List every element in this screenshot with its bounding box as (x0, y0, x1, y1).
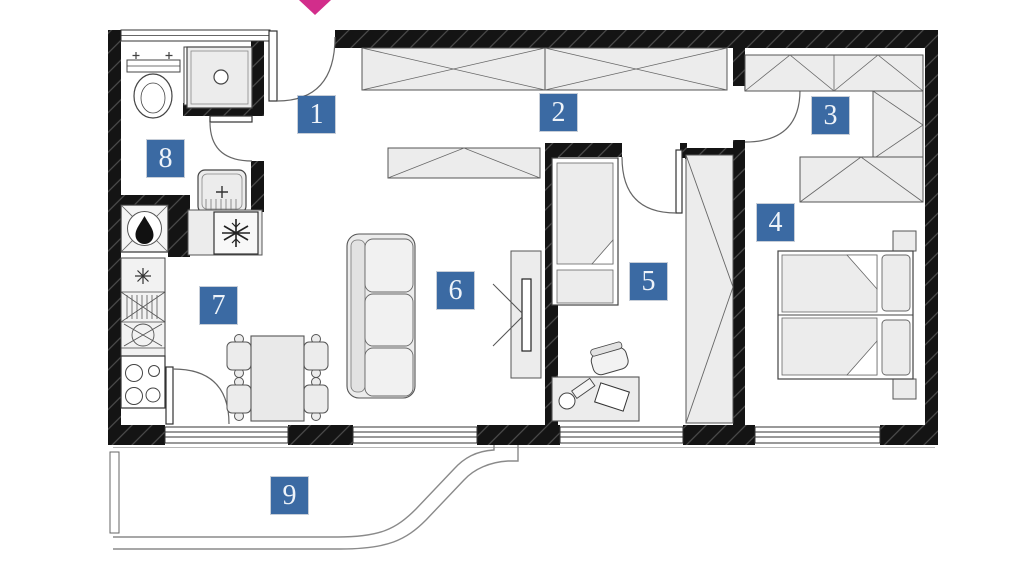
toilet-icon (127, 52, 180, 118)
wall-bedroom-left-upper (733, 48, 745, 86)
fridge-snowflake-icon (188, 210, 262, 255)
pillow (882, 255, 910, 311)
room-label-6: 6 (437, 272, 474, 309)
wall-bedroom-left (733, 140, 745, 425)
terrace-rail-post (110, 452, 119, 533)
washbasin-icon (198, 170, 246, 213)
entrance-arrow-icon (299, 0, 331, 15)
room-label-2: 2 (540, 94, 577, 131)
bathroom-fixtures (121, 47, 262, 255)
room-label-3: 3 (812, 97, 849, 134)
nightstand (893, 231, 916, 251)
room-label-8: 8 (147, 140, 184, 177)
window-living (353, 427, 477, 443)
double-bed (778, 251, 913, 379)
room-label-9: 9 (271, 477, 308, 514)
dining-table (251, 336, 304, 421)
wardrobe (873, 91, 923, 159)
balcony-door (166, 367, 229, 424)
window-kidsroom (560, 427, 683, 443)
wall-bottom-pier (880, 425, 938, 445)
window-bedroom (755, 427, 880, 443)
terrace-rail-outer (113, 445, 518, 549)
nightstand (893, 379, 916, 399)
wardrobe (800, 157, 923, 202)
wall-right (925, 30, 938, 445)
stove-burners-icon (121, 356, 165, 408)
wall-bottom-pier (683, 425, 755, 445)
wardrobe (745, 55, 923, 91)
dining-set (227, 335, 328, 422)
kidsroom-door (622, 150, 682, 213)
wall-bottom-pier (477, 425, 560, 445)
tv-unit (493, 251, 541, 378)
room-label-4: 4 (757, 204, 794, 241)
boiler-flame-icon (121, 205, 168, 252)
room-label-1: 1 (298, 96, 335, 133)
wall-bottom-pier (288, 425, 353, 445)
sliding-wardrobe (686, 155, 733, 423)
window-kitchen (165, 427, 288, 443)
shelf-unit (388, 148, 540, 178)
wall-top (335, 30, 938, 48)
wall-left (108, 30, 121, 445)
bathroom-door (210, 116, 252, 161)
bedroom-furniture (778, 231, 916, 399)
kitchen-counter (121, 258, 165, 408)
floor-plan: 1 2 3 4 5 6 7 8 9 (0, 0, 1011, 570)
sofa (347, 234, 415, 398)
shower-icon (187, 47, 252, 108)
wall-basin-nook (251, 161, 264, 212)
entrance-door (269, 31, 335, 101)
living-room-furniture (347, 234, 541, 398)
desk-lamp-icon (559, 393, 575, 409)
floor-plan-drawing (0, 0, 1011, 570)
wall-bottom-pier (108, 425, 165, 445)
wardrobe (362, 48, 545, 90)
room-label-5: 5 (630, 263, 667, 300)
room-label-7: 7 (200, 287, 237, 324)
single-bed (552, 158, 618, 305)
pillow (882, 320, 910, 375)
wall-boiler-side (168, 207, 190, 257)
terrace (110, 445, 518, 549)
wall-kidsroom-top (558, 143, 622, 157)
wardrobe (545, 48, 727, 90)
desk (552, 341, 639, 421)
bedroom-door (745, 84, 800, 142)
